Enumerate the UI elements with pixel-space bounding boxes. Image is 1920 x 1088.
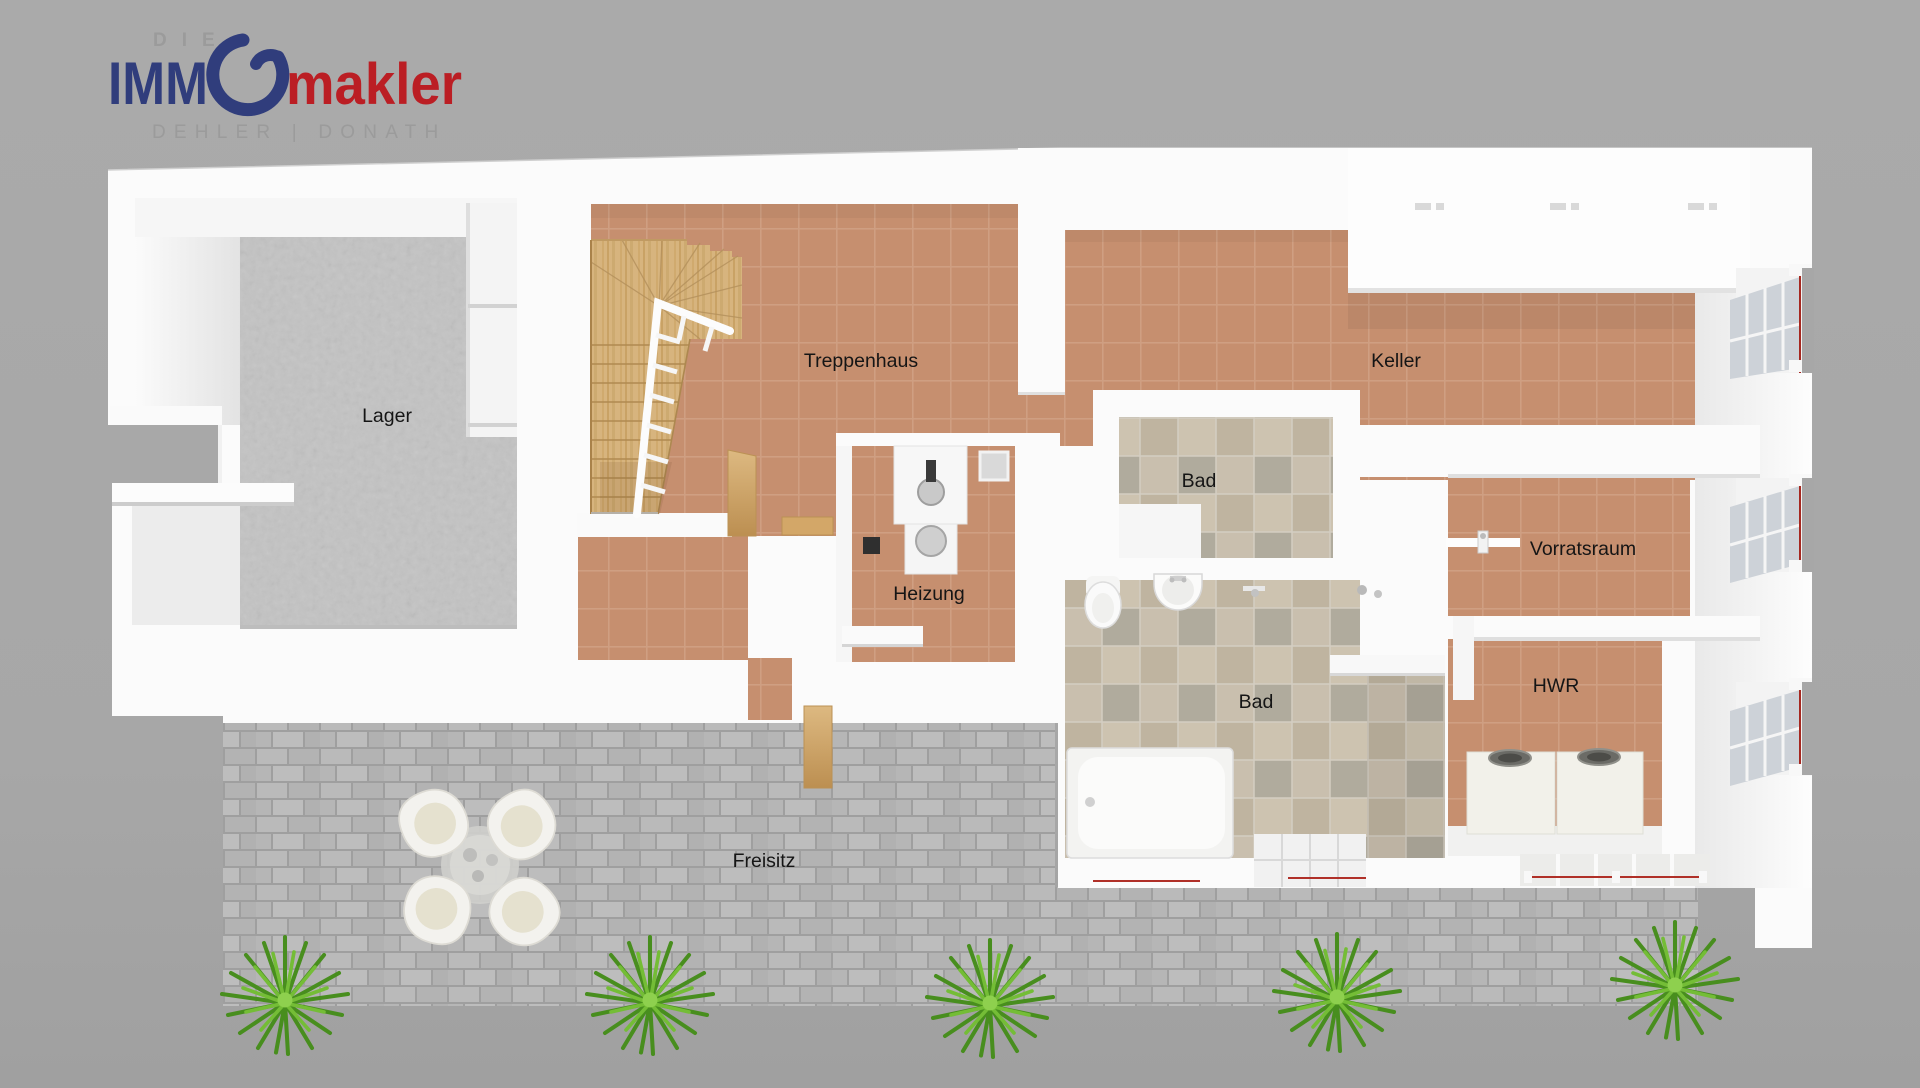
svg-text:Treppenhaus: Treppenhaus bbox=[804, 350, 918, 372]
svg-text:IMM: IMM bbox=[108, 50, 208, 117]
svg-text:Bad: Bad bbox=[1239, 691, 1274, 713]
svg-text:Keller: Keller bbox=[1371, 350, 1421, 372]
svg-text:Bad: Bad bbox=[1182, 470, 1217, 492]
svg-text:Lager: Lager bbox=[362, 405, 412, 427]
svg-text:Freisitz: Freisitz bbox=[733, 850, 796, 872]
svg-text:makler: makler bbox=[286, 52, 462, 117]
svg-text:Vorratsraum: Vorratsraum bbox=[1530, 538, 1636, 560]
svg-text:HWR: HWR bbox=[1533, 675, 1580, 697]
svg-text:DEHLER | DONATH: DEHLER | DONATH bbox=[152, 122, 446, 143]
svg-text:Heizung: Heizung bbox=[893, 583, 965, 605]
